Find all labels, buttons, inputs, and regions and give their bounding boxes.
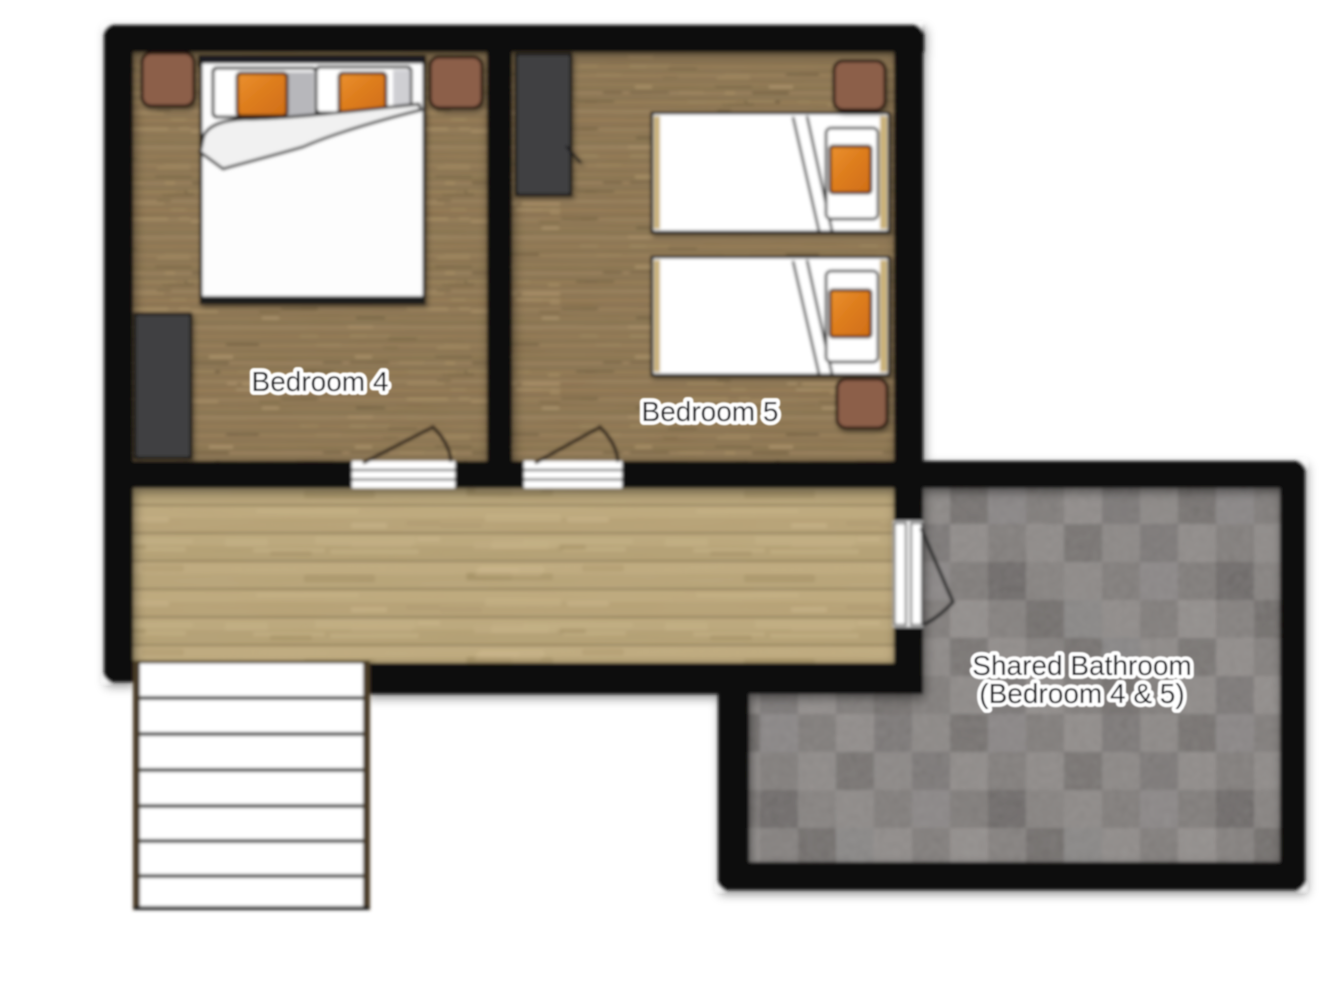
svg-text:Bedroom 5: Bedroom 5 <box>642 396 779 427</box>
svg-text:(Bedroom 4 & 5): (Bedroom 4 & 5) <box>979 678 1184 709</box>
svg-text:Shared Bathroom: Shared Bathroom <box>972 650 1191 681</box>
svg-text:Bedroom 4: Bedroom 4 <box>252 366 389 397</box>
